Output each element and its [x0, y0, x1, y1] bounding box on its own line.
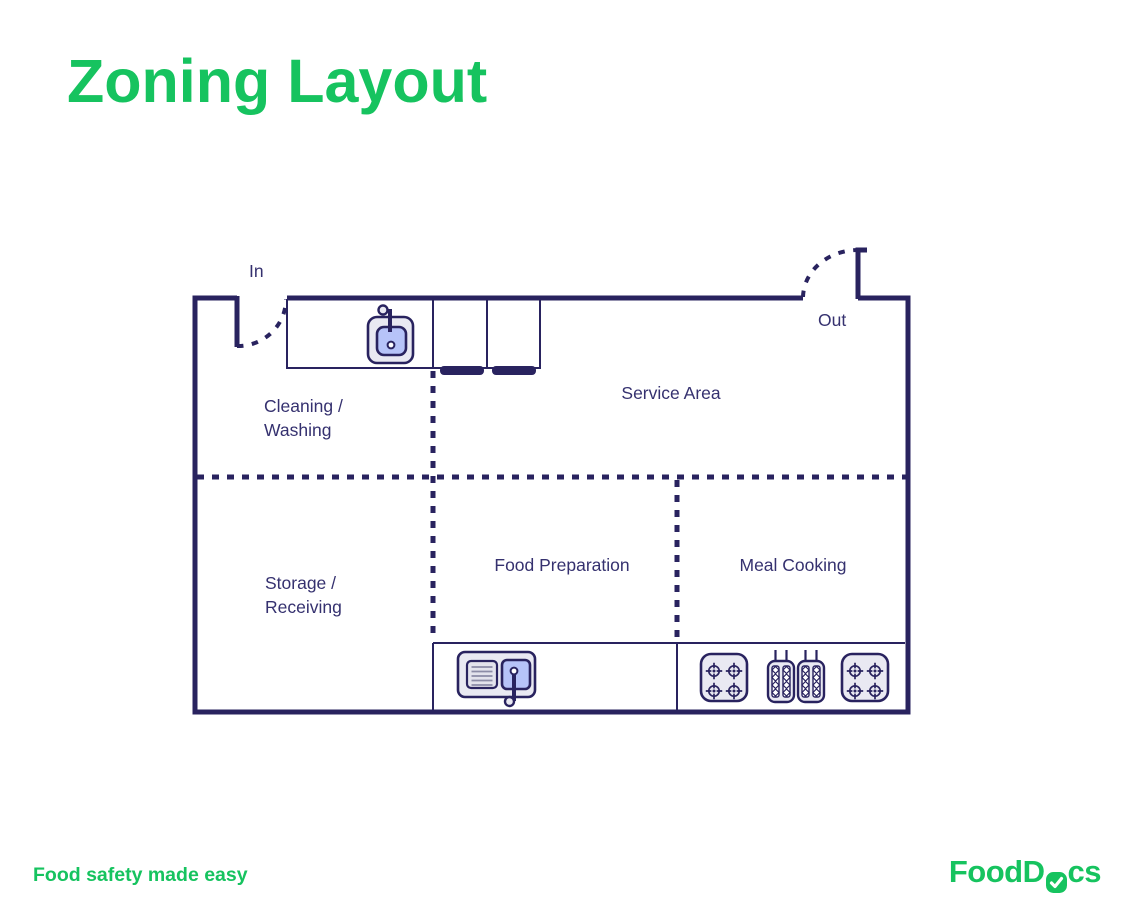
wash-sink-icon [368, 306, 413, 364]
outer-walls [195, 298, 908, 712]
stove-four-burner-icon [701, 654, 747, 701]
stove-four-burner-icon [842, 654, 888, 701]
footer-tagline: Food safety made easy [33, 864, 248, 887]
logo-text-before: FoodD [949, 854, 1045, 890]
foodocs-logo: FoodDcs [949, 853, 1101, 891]
logo-check-icon [1046, 865, 1067, 886]
door-label-in: In [249, 259, 264, 283]
zoning-layout-page: Zoning Layout [0, 0, 1137, 919]
floor-plan [0, 0, 1137, 919]
zone-label-storage-receiving: Storage / Receiving [265, 571, 342, 619]
entrance-door-icon [237, 296, 286, 347]
prep-sink-dishwasher-icon [458, 652, 535, 706]
zone-label-meal-cooking: Meal Cooking [740, 553, 847, 577]
logo-text-after: cs [1068, 854, 1101, 890]
door-label-out: Out [818, 308, 846, 332]
zone-label-cleaning-washing: Cleaning / Washing [264, 394, 343, 442]
zone-label-service-area: Service Area [621, 381, 720, 405]
exit-door-icon [803, 250, 867, 299]
zone-label-food-preparation: Food Preparation [494, 553, 629, 577]
double-grill-icon [768, 650, 824, 702]
